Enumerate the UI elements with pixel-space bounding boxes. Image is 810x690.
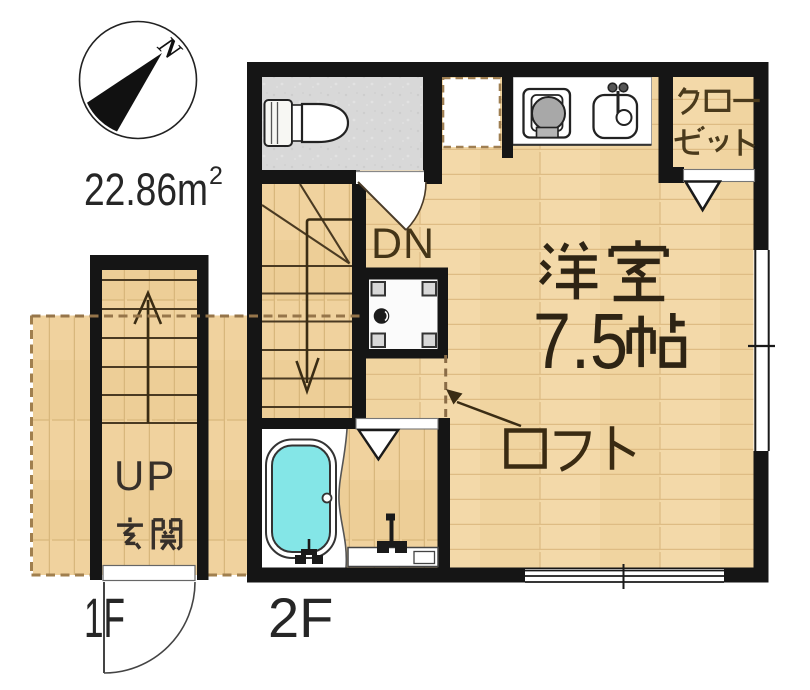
svg-text:1F: 1F [84, 586, 125, 649]
svg-text:UP: UP [114, 452, 176, 499]
svg-text:2: 2 [209, 162, 223, 190]
svg-text:22.86m: 22.86m [84, 164, 208, 215]
svg-text:7.5: 7.5 [533, 296, 628, 385]
svg-text:2F: 2F [268, 586, 333, 649]
